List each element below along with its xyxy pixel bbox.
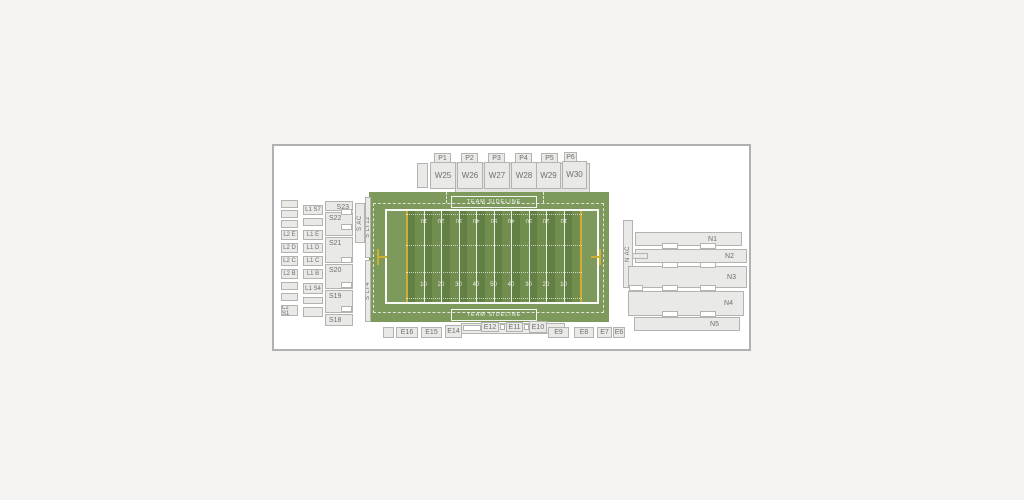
section-east-unlabeled[interactable] (383, 327, 394, 338)
yard-number: 20 (433, 217, 449, 223)
yard-number: 10 (416, 217, 432, 223)
section-e15[interactable]: E15 (421, 327, 442, 338)
section-w26[interactable]: W26 (457, 162, 483, 189)
section-l2-unlabeled[interactable] (281, 282, 298, 290)
aisle-notch (629, 285, 643, 291)
yard-number: 30 (451, 217, 467, 223)
section-l1-c[interactable]: L1 C (303, 256, 323, 266)
section-e12[interactable]: E12 (481, 322, 499, 332)
section-e9[interactable]: E9 (548, 327, 569, 338)
section-l1-s7[interactable]: L1 S7 (303, 205, 323, 215)
yard-number: 30 (451, 282, 467, 288)
section-e6[interactable]: E6 (613, 327, 625, 338)
team-sideline-top: TEAM SIDELINE (451, 196, 537, 208)
section-e10[interactable]: E10 (529, 321, 547, 333)
section-n1[interactable]: N1 (635, 232, 742, 246)
yard-number: 40 (503, 282, 519, 288)
section-l1-unlabeled[interactable] (303, 218, 323, 226)
section-n4[interactable]: N4 (628, 291, 744, 316)
aisle-notch (341, 209, 352, 215)
section-n2[interactable]: N2 (635, 249, 747, 263)
section-e14[interactable]: E14 (445, 325, 462, 338)
section-l2-unlabeled[interactable] (281, 200, 298, 208)
section-e16[interactable]: E16 (396, 327, 418, 338)
n2-tab (632, 253, 648, 259)
section-l1-e[interactable]: L1 E (303, 230, 323, 240)
section-w29[interactable]: W29 (536, 162, 561, 189)
section-s-lt12[interactable]: S LT12 (365, 197, 371, 258)
boundary-notch (543, 192, 544, 203)
yard-number: 40 (503, 217, 519, 223)
section-s18[interactable]: S18 (325, 314, 353, 326)
boundary-notch (446, 192, 447, 203)
east-bar (463, 325, 481, 331)
section-w27[interactable]: W27 (484, 162, 510, 189)
aisle-notch (341, 224, 352, 230)
section-l1-b[interactable]: L1 B (303, 269, 323, 279)
section-l1-s4[interactable]: L1 S4 (303, 283, 323, 294)
aisle-notch (700, 285, 716, 291)
section-l2-unlabeled[interactable] (281, 220, 298, 228)
section-l2-b[interactable]: L2 B (281, 269, 298, 279)
yard-number: 30 (521, 282, 537, 288)
yard-number: 20 (538, 282, 554, 288)
section-l2-unlabeled[interactable] (281, 210, 298, 218)
yard-number: 10 (416, 282, 432, 288)
seatmap-stage: P1 P2 P3 P4 P5 P6 W25 W26 W27 W28 W29 W3… (0, 0, 1024, 500)
aisle-notch (341, 306, 352, 312)
section-l2-unlabeled[interactable] (281, 293, 298, 301)
football-field: 10 20 30 40 50 40 30 20 10 10 20 30 40 5… (369, 192, 609, 322)
aisle-notch (662, 311, 678, 317)
playing-field-border (385, 209, 599, 304)
section-w30[interactable]: W30 (562, 161, 587, 189)
section-s-lt4[interactable]: S LT4 (365, 260, 371, 322)
section-l1-d[interactable]: L1 D (303, 243, 323, 253)
yard-number: 40 (468, 282, 484, 288)
goalpost-left-icon (377, 256, 387, 258)
yard-number: 10 (556, 282, 572, 288)
section-w28[interactable]: W28 (511, 162, 537, 189)
yard-number: 10 (556, 217, 572, 223)
team-sideline-bottom: TEAM SIDELINE (451, 309, 537, 321)
aisle-notch (662, 285, 678, 291)
aisle-notch (662, 262, 678, 268)
section-l2-e[interactable]: L2 E (281, 230, 298, 240)
section-e7[interactable]: E7 (597, 327, 612, 338)
section-n5[interactable]: N5 (634, 317, 740, 331)
aisle-notch (500, 324, 505, 330)
section-n3[interactable]: N3 (628, 266, 747, 288)
yard-number: 30 (521, 217, 537, 223)
yard-number: 20 (538, 217, 554, 223)
section-e8[interactable]: E8 (574, 327, 594, 338)
section-e11[interactable]: E11 (506, 322, 523, 332)
section-l2-c[interactable]: L2 C (281, 256, 298, 266)
aisle-notch (341, 282, 352, 288)
goalpost-right-icon (591, 256, 601, 258)
section-s-ac[interactable]: S AC (355, 203, 365, 243)
section-w25[interactable]: W25 (430, 162, 456, 189)
aisle-notch (700, 262, 716, 268)
section-l1-unlabeled[interactable] (303, 307, 323, 317)
aisle-notch (700, 311, 716, 317)
aisle-notch (700, 243, 716, 249)
section-l2-s1[interactable]: L2 S1 (281, 305, 298, 316)
section-west-unlabeled[interactable] (417, 163, 428, 188)
yard-number: 20 (433, 282, 449, 288)
aisle-notch (341, 257, 352, 263)
yard-number: 40 (468, 217, 484, 223)
yard-number: 50 (486, 282, 502, 288)
section-l1-unlabeled[interactable] (303, 297, 323, 304)
aisle-notch (662, 243, 678, 249)
yard-number: 50 (486, 217, 502, 223)
section-l2-d[interactable]: L2 D (281, 243, 298, 253)
